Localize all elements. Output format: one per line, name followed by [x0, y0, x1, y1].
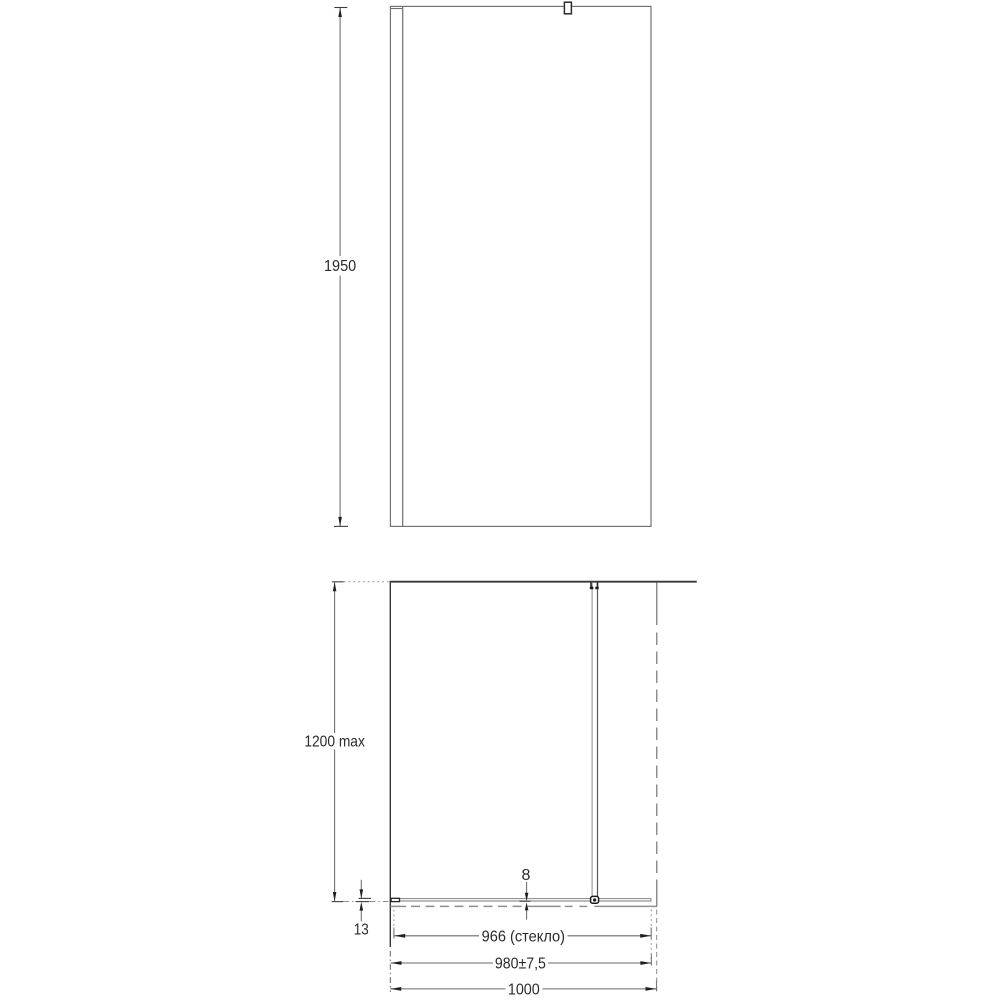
svg-text:8: 8 — [522, 867, 531, 884]
svg-text:13: 13 — [354, 921, 369, 938]
svg-text:980±7,5: 980±7,5 — [495, 956, 546, 973]
svg-text:1950: 1950 — [324, 258, 356, 275]
svg-text:1200 max: 1200 max — [304, 734, 365, 751]
svg-text:1000: 1000 — [508, 981, 540, 998]
svg-text:966 (стекло): 966 (стекло) — [482, 928, 565, 945]
